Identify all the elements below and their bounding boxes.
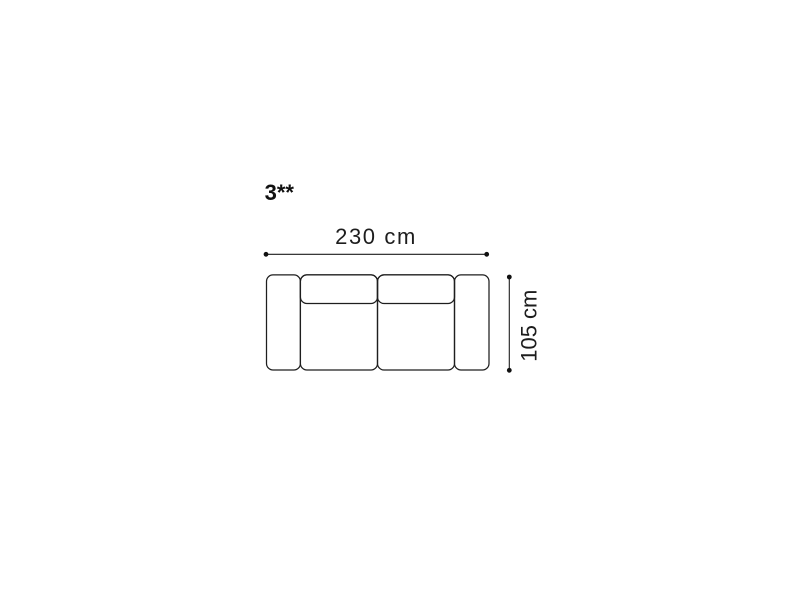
svg-text:3**: 3** (265, 180, 295, 205)
svg-text:230 cm: 230 cm (335, 224, 417, 249)
svg-text:105 cm: 105 cm (517, 290, 542, 362)
